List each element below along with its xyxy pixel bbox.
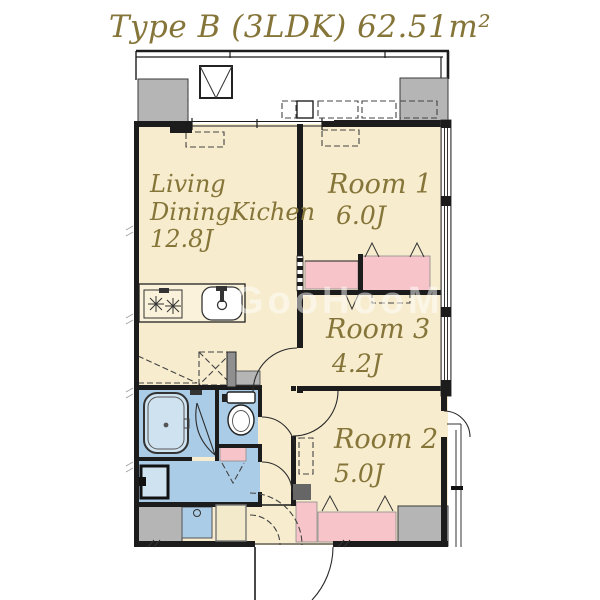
ldk-area-label: 12.8J xyxy=(150,225,214,253)
window-room3 xyxy=(442,317,450,380)
window-room1-a xyxy=(442,128,450,196)
watermark-text: GooHooM xyxy=(234,280,444,322)
ldk-label-line2: DiningKichen xyxy=(149,198,315,226)
shoe-cabinet xyxy=(216,505,246,541)
kitchen-counter xyxy=(139,284,245,322)
entrance-door-arc xyxy=(312,547,333,600)
balcony xyxy=(136,51,449,80)
room1-label: Room 1 xyxy=(327,169,432,200)
room3-area-label: 4.2J xyxy=(331,349,384,378)
room2-area-label: 5.0J xyxy=(334,459,386,488)
room1-area-label: 6.0J xyxy=(336,201,388,230)
dimension-ticks xyxy=(126,226,133,472)
floor-plan-page: Type B (3LDK) 62.51m² xyxy=(0,0,600,600)
room2-label: Room 2 xyxy=(333,424,438,455)
plan-title: Type B (3LDK) 62.51m² xyxy=(109,9,491,45)
ldk-label-line1: Living xyxy=(149,170,226,198)
washer-icon xyxy=(137,466,168,498)
pipe-shaft-icon xyxy=(200,66,232,98)
floor-plan-canvas: Type B (3LDK) 62.51m² xyxy=(0,0,600,600)
